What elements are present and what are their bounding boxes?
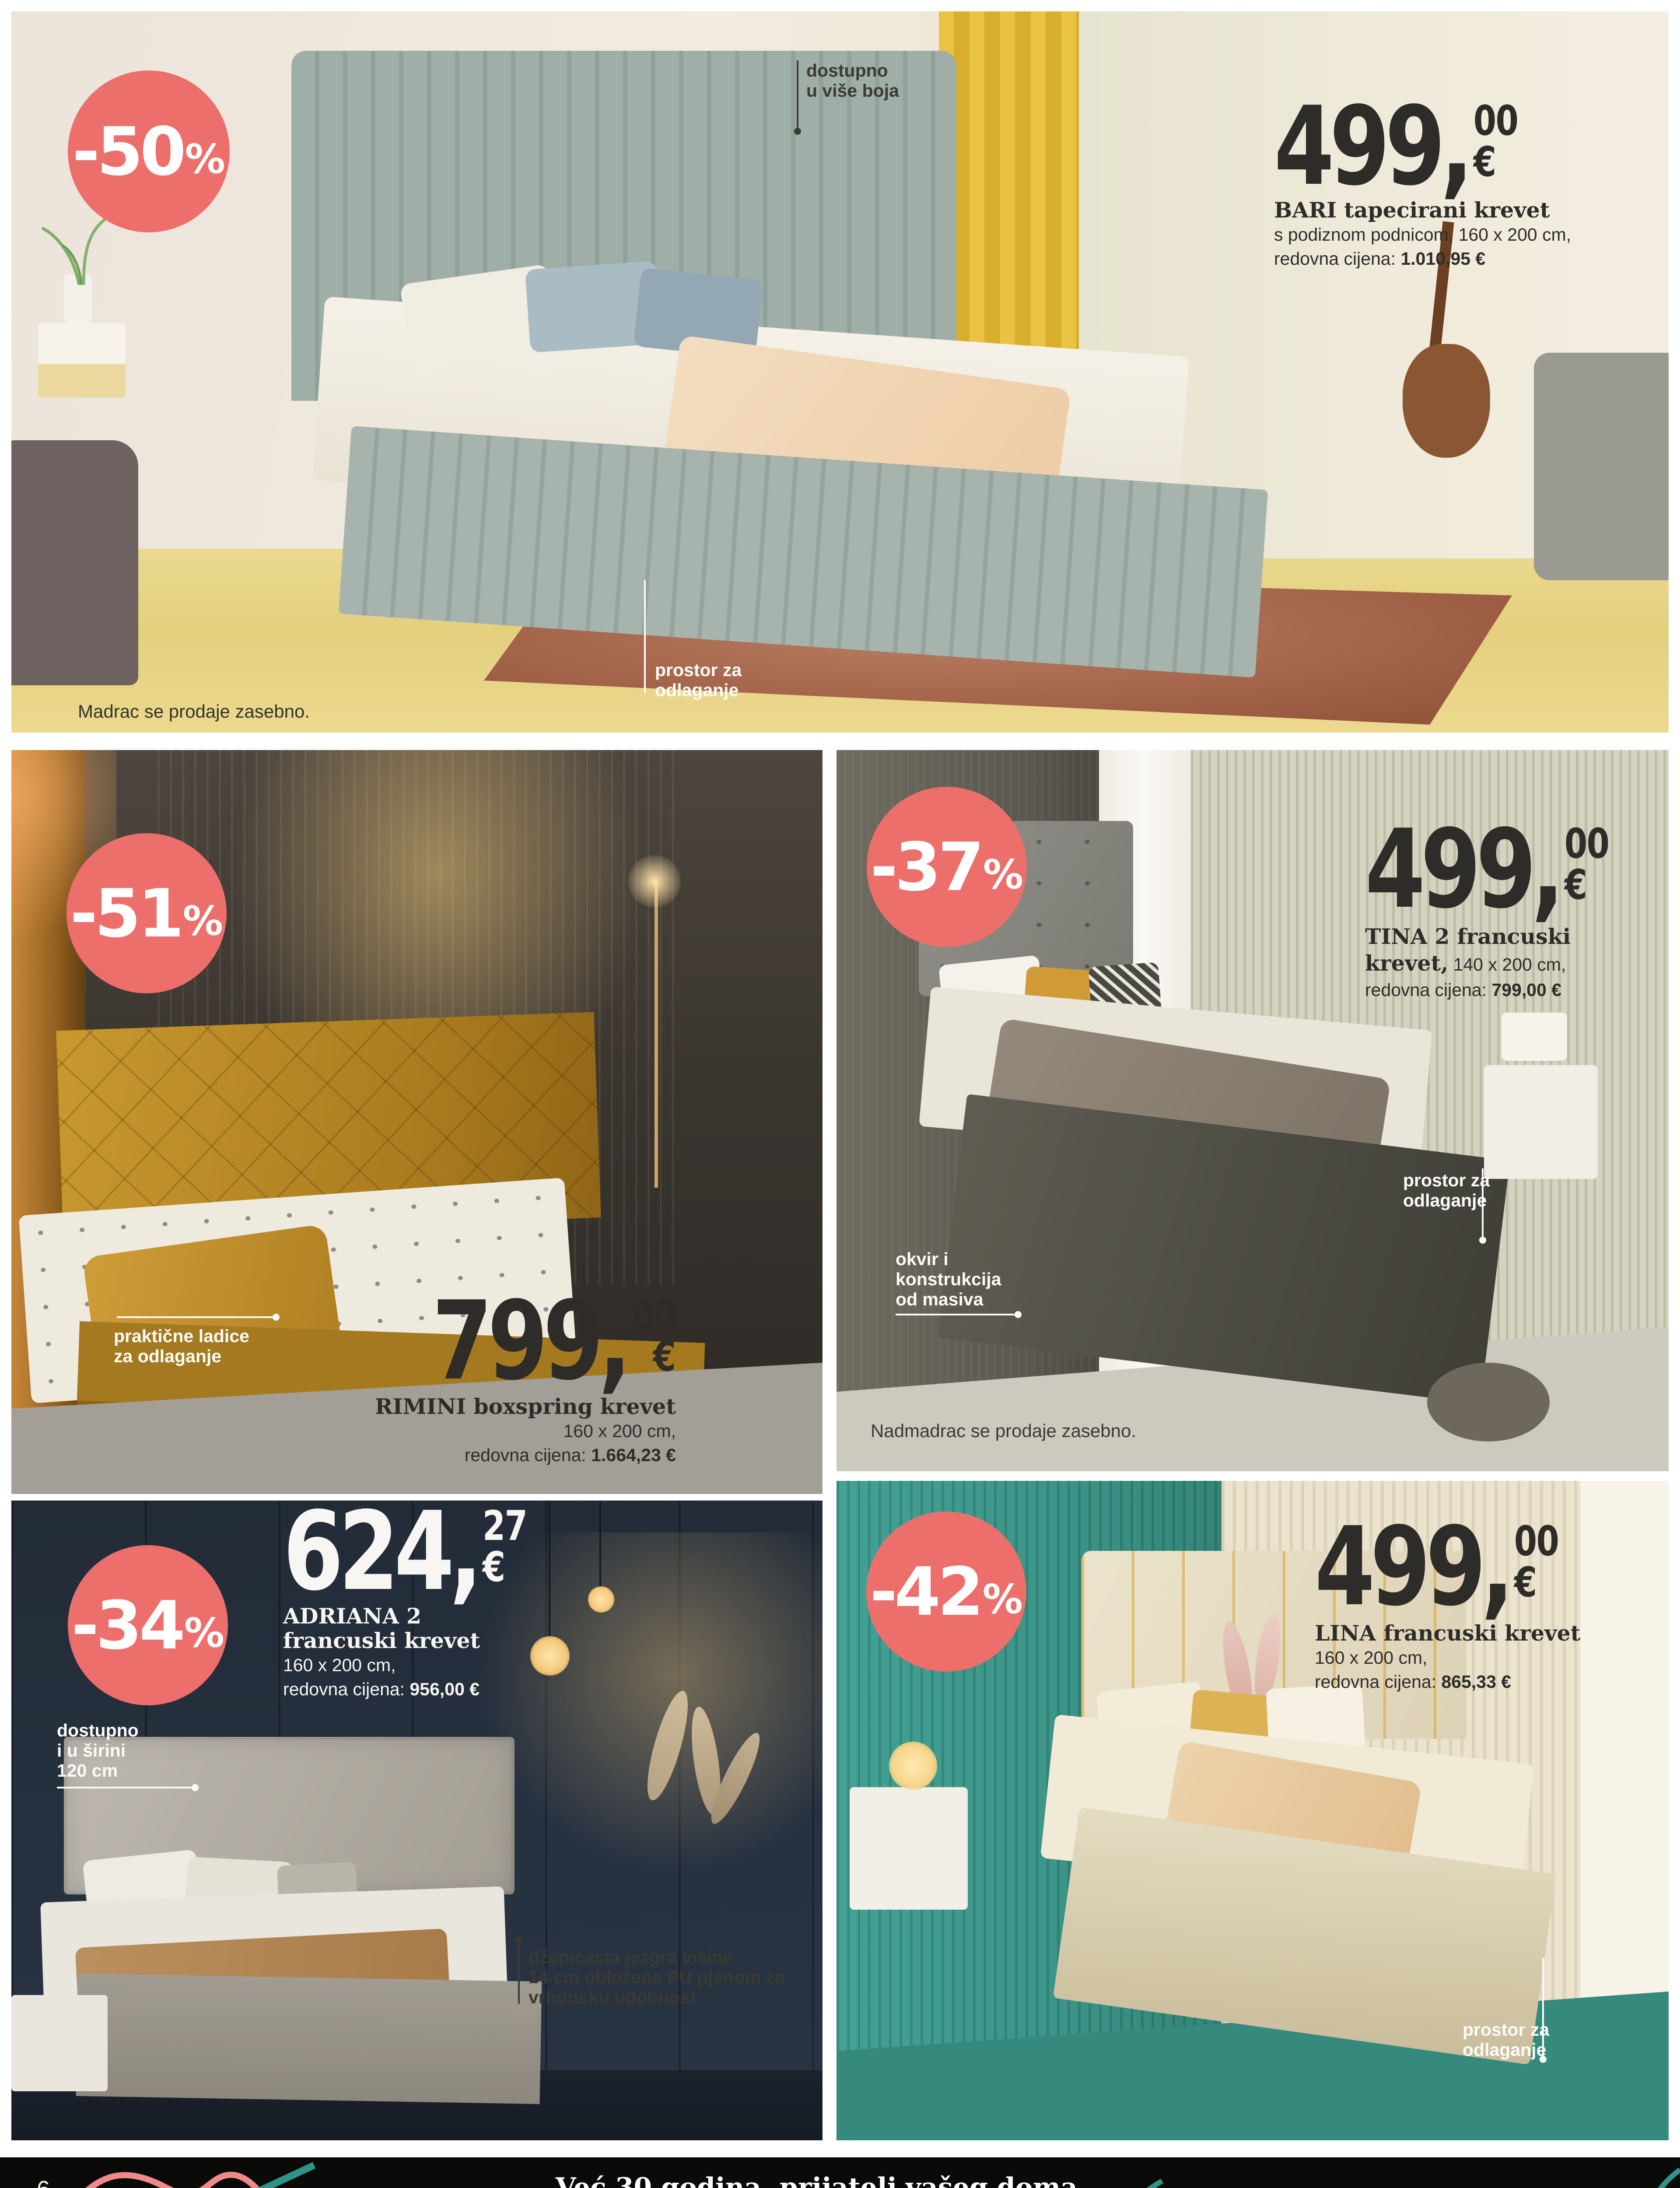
discount-percent-sign: %: [983, 851, 1023, 898]
discount-percent-sign: %: [983, 1576, 1023, 1623]
discount-value: -34: [71, 1587, 182, 1664]
product-size: 160 x 200 cm,: [195, 1419, 676, 1443]
discount-badge: -50%: [68, 70, 230, 232]
regular-price-line: redovna cijena: 956,00 €: [283, 1677, 677, 1701]
discount-value: -51: [70, 875, 181, 952]
euro-sign: €: [632, 1336, 676, 1378]
footer: 6 Već 30 godina, prijatelj vašeg doma.: [0, 2157, 1680, 2188]
bed-base: [76, 1974, 542, 2104]
pointer-line: [57, 1787, 193, 1788]
discount-percent-sign: %: [184, 1609, 224, 1656]
mattress-note: Madrac se prodaje zasebno.: [78, 701, 310, 722]
label-available-colors: dostupno u više boja: [806, 60, 899, 101]
discount-badge: -37%: [867, 787, 1027, 947]
price-block-lina: 499, 00€ LINA francuski krevet 160 x 200…: [1315, 1523, 1656, 1694]
product-card-bari[interactable]: -50% dostupno u više boja prostor za odl…: [11, 11, 1669, 733]
product-name-line2: francuski krevet: [283, 1629, 677, 1653]
euro-sign: €: [483, 1547, 527, 1588]
discount-badge: -34%: [68, 1545, 228, 1705]
product-card-adriana[interactable]: -34% 624, 27€ ADRIANA 2 francuski krevet…: [11, 1501, 822, 2140]
price: 624, 27€: [283, 1508, 598, 1596]
regular-price-line: redovna cijena: 1.010,95 €: [1274, 247, 1668, 271]
nightstand: [1484, 1065, 1598, 1179]
product-size: 160 x 200 cm,: [283, 1653, 677, 1677]
product-card-lina[interactable]: -42% 499, 00€ LINA francuski krevet 160 …: [836, 1481, 1669, 2140]
label-pocket-core: džepićasta jezgra visine 14 cm obložena …: [528, 1947, 785, 2007]
product-size: 160 x 200 cm,: [1315, 1646, 1656, 1670]
lamp-glow: [628, 855, 681, 908]
floor-lamp: [654, 881, 658, 1188]
pointer-line: [518, 1942, 520, 2004]
price-block-tina: 499, 00€ TINA 2 francuski krevet, 140 x …: [1365, 825, 1662, 1002]
pointer-line: [1542, 1958, 1544, 2058]
nightstand: [38, 323, 126, 397]
price-block-bari: 499, 00€ BARI tapecirani krevet s podizn…: [1274, 102, 1668, 271]
product-card-rimini[interactable]: -51% praktične ladice za odlaganje 799, …: [11, 750, 822, 1494]
label-storage-space: prostor za odlaganje: [1403, 1170, 1490, 1210]
price: 499, 00€: [1315, 1523, 1588, 1612]
label-storage-space: prostor za odlaganje: [655, 660, 742, 700]
label-solid-wood-frame: okvir i konstrukcija od masiva: [896, 1249, 1001, 1309]
discount-value: -37: [870, 828, 981, 906]
nightstand: [11, 1995, 108, 2091]
label-storage-space: prostor za odlaganje: [1463, 2020, 1549, 2060]
pointer-line: [1482, 1168, 1484, 1238]
price-block-adriana: 624, 27€ ADRIANA 2 francuski krevet 160 …: [283, 1508, 677, 1701]
discount-value: -42: [870, 1553, 981, 1630]
pointer-line: [896, 1314, 1016, 1315]
regular-price-line: redovna cijena: 865,33 €: [1315, 1670, 1656, 1694]
lamp-glow: [889, 1742, 937, 1790]
guitar-body: [1403, 344, 1490, 458]
regular-price-line: redovna cijena: 799,00 €: [1365, 978, 1662, 1002]
euro-sign: €: [1514, 1562, 1558, 1603]
discount-badge: -51%: [66, 833, 227, 993]
footer-slogan: Već 30 godina, prijatelj vašeg doma.: [556, 2172, 1087, 2188]
table-lamp: [1501, 1013, 1567, 1061]
armchair: [11, 440, 138, 685]
discount-percent-sign: %: [185, 136, 225, 182]
price: 499, 00€: [1365, 825, 1603, 914]
nightstand: [850, 1787, 968, 1910]
product-card-tina[interactable]: -37% 499, 00€ TINA 2 francuski krevet, 1…: [836, 750, 1669, 1471]
label-available-width: dostupno i u širini 120 cm: [57, 1720, 139, 1781]
discount-percent-sign: %: [183, 898, 223, 944]
product-details: s podiznom podnicom, 160 x 200 cm,: [1274, 223, 1668, 247]
euro-sign: €: [1564, 865, 1609, 906]
price-block-rimini: 799, 00€ RIMINI boxspring krevet 160 x 2…: [195, 1297, 676, 1467]
euro-sign: €: [1473, 142, 1518, 183]
sofa: [1534, 353, 1669, 580]
discount-badge: -42%: [866, 1511, 1026, 1672]
flyer-page: -50% dostupno u više boja prostor za odl…: [0, 0, 1680, 2188]
regular-price-line: redovna cijena: 1.664,23 €: [195, 1443, 676, 1467]
pointer-line: [797, 60, 798, 130]
price: 499, 00€: [1274, 102, 1589, 191]
pointer-line: [644, 580, 646, 693]
topper-note: Nadmadrac se prodaje zasebno.: [871, 1420, 1136, 1441]
price: 799, 00€: [291, 1297, 676, 1386]
page-number: 6: [37, 2176, 50, 2188]
discount-value: -50: [72, 113, 183, 190]
product-name-line2: krevet, 140 x 200 cm,: [1365, 949, 1662, 978]
pouf: [1427, 1363, 1550, 1441]
